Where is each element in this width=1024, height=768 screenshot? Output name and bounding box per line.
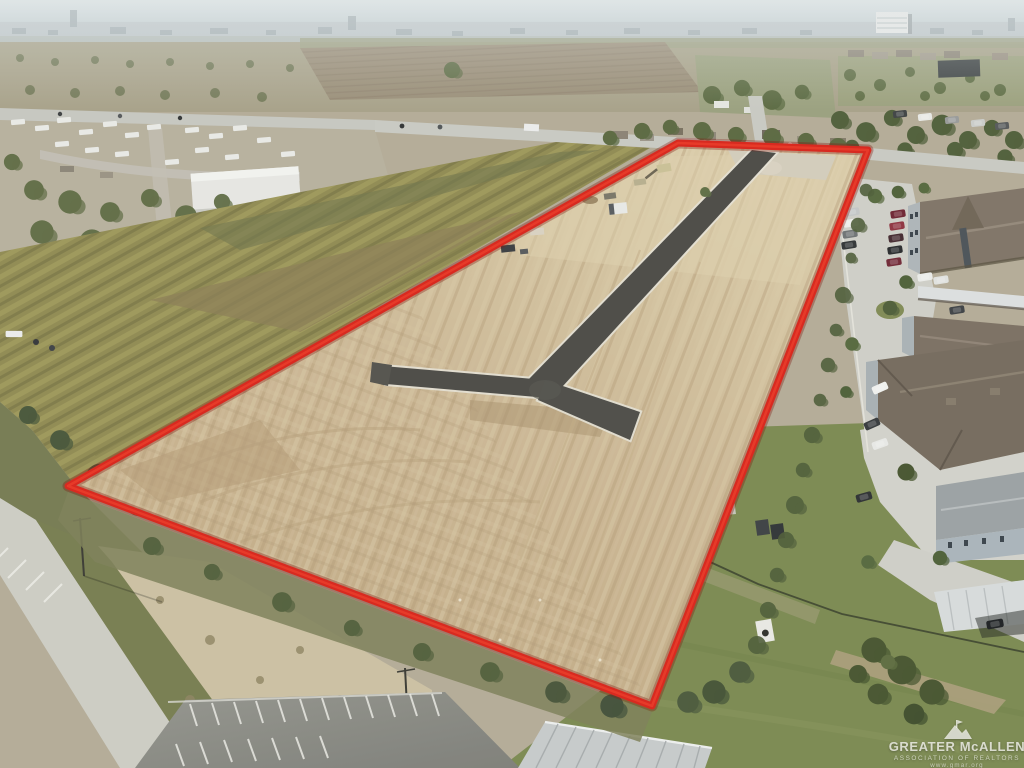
watermark-url: www.gmar.org xyxy=(929,762,984,768)
aerial-photo-canvas: GREATER McALLEN ASSOCIATION OF REALTORS … xyxy=(0,0,1024,768)
watermark-subtitle: ASSOCIATION OF REALTORS xyxy=(894,755,1020,762)
watermark-title: GREATER McALLEN xyxy=(889,739,1024,754)
warm-tint xyxy=(0,0,1024,768)
aerial-photo: GREATER McALLEN ASSOCIATION OF REALTORS … xyxy=(0,0,1024,768)
